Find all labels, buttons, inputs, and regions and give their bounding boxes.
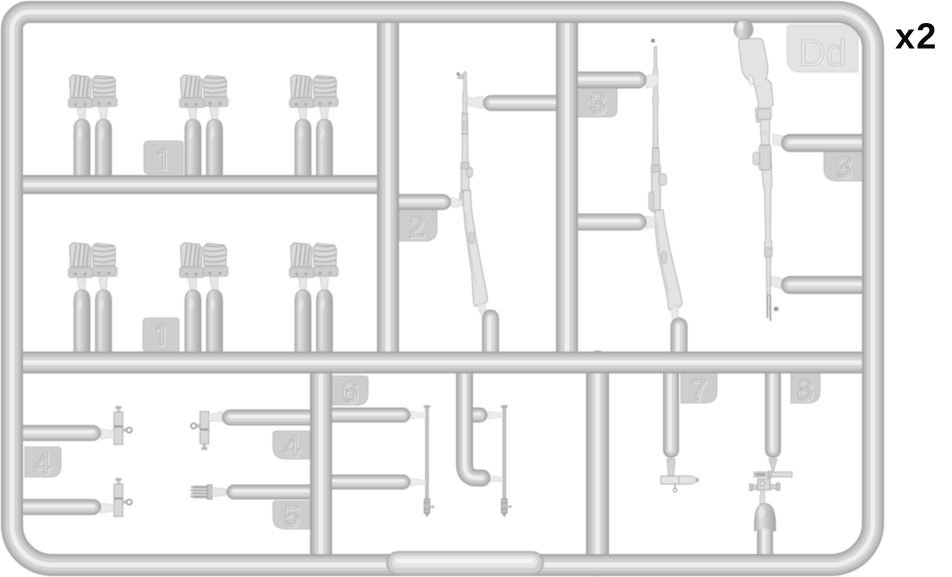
svg-text:x2: x2 (895, 16, 937, 57)
